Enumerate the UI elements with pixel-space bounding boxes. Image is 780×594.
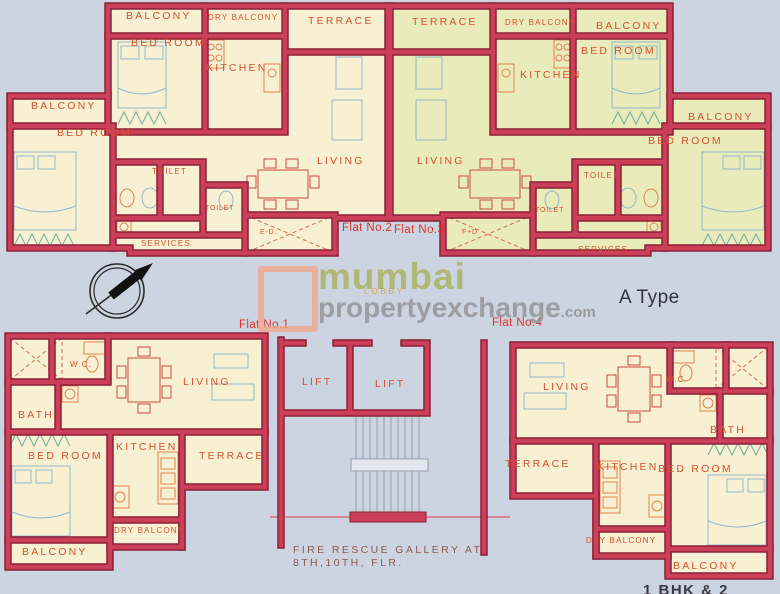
flat2-kitchen-label: KITCHEN <box>206 63 268 74</box>
floor-plan-page: BALCONY DRY BALCONY TERRACE BED ROOM KIT… <box>0 0 780 594</box>
flat1-living-label: LIVING <box>183 377 231 388</box>
fire-rescue-note-line2: 8TH,10TH, FLR. <box>293 558 404 569</box>
flat3-duct-label: F+D <box>462 229 478 236</box>
flat2-duct-label: E-D. <box>260 229 277 236</box>
flat4-dry-balcony-label: DRY BALCONY <box>586 537 656 545</box>
flat2-bedroom-top-label: BED ROOM <box>131 38 206 49</box>
flat2-services-label: SERVICES <box>141 240 191 248</box>
flat2-number-label: Flat No.2 <box>342 223 392 235</box>
north-arrow-icon <box>86 263 153 318</box>
flat3-terrace-label: TERRACE <box>412 17 478 28</box>
lobby-label: LOBBY <box>364 286 405 296</box>
flat3-toilet1-label: TOILET <box>584 172 619 180</box>
flat3-living-label: LIVING <box>417 156 465 167</box>
flat2-toilet1-label: TOILET <box>152 168 187 176</box>
flat3-balcony-top-label: BALCONY <box>596 21 662 32</box>
flat3-bedroom-right-label: BED ROOM <box>648 136 723 147</box>
flat2-toilet2-label: TOILET <box>205 205 234 212</box>
flat3-balcony-right-label: BALCONY <box>688 112 754 123</box>
flat3-number-label: Flat No.3 <box>394 225 444 237</box>
flat3-toilet2-label: TOILET <box>535 207 564 214</box>
flat1-terrace-label: TERRACE <box>199 451 265 462</box>
bottom-caption: 1 BHK & 2 <box>643 582 729 594</box>
flat1-bedroom-label: BED ROOM <box>28 451 103 462</box>
lift-right-label: LIFT <box>375 379 405 390</box>
flat2-balcony-top-label: BALCONY <box>126 11 192 22</box>
fire-rescue-note-line1: FIRE RESCUE GALLERY AT <box>293 545 482 556</box>
flat4-balcony-label: BALCONY <box>673 561 739 572</box>
flat4-bedroom-label: BED ROOM <box>658 464 733 475</box>
flat1-number-label: Flat No.1 <box>239 320 289 332</box>
flat3-kitchen-label: KITCHEN <box>520 70 582 81</box>
flat2-living-label: LIVING <box>317 156 365 167</box>
flat1-bath-label: BATH <box>18 410 54 421</box>
staircase <box>270 416 510 522</box>
flat2-dry-balcony-label: DRY BALCONY <box>208 14 278 22</box>
flat2-balcony-left-label: BALCONY <box>31 101 97 112</box>
flat1-dry-balcony-label: DRY BALCONY <box>114 527 184 535</box>
flat1-balcony-label: BALCONY <box>22 547 88 558</box>
flat4-terrace-label: TERRACE <box>505 459 571 470</box>
flat4-bath-label: BATH <box>710 425 746 436</box>
flat4-living-label: LIVING <box>543 382 591 393</box>
lift-left-label: LIFT <box>302 377 332 388</box>
flat2-bedroom-left-label: BED ROOM <box>57 128 132 139</box>
flat1-kitchen-label: KITCHEN <box>116 442 178 453</box>
flat4-number-label: Flat No.4 <box>492 318 542 330</box>
flat4-wc-label: W.C <box>666 376 685 384</box>
flat1-wc-label: W.C. <box>70 361 92 369</box>
flat3-bedroom-top-label: BED ROOM <box>581 46 656 57</box>
flat3-dry-balcony-label: DRY BALCONY <box>505 19 575 27</box>
plan-type-title: A Type <box>619 287 680 309</box>
flat4-kitchen-label: KITCHEN <box>597 462 659 473</box>
flat3-services-label: SERVICES <box>578 246 628 254</box>
flat2-terrace-label: TERRACE <box>308 16 374 27</box>
